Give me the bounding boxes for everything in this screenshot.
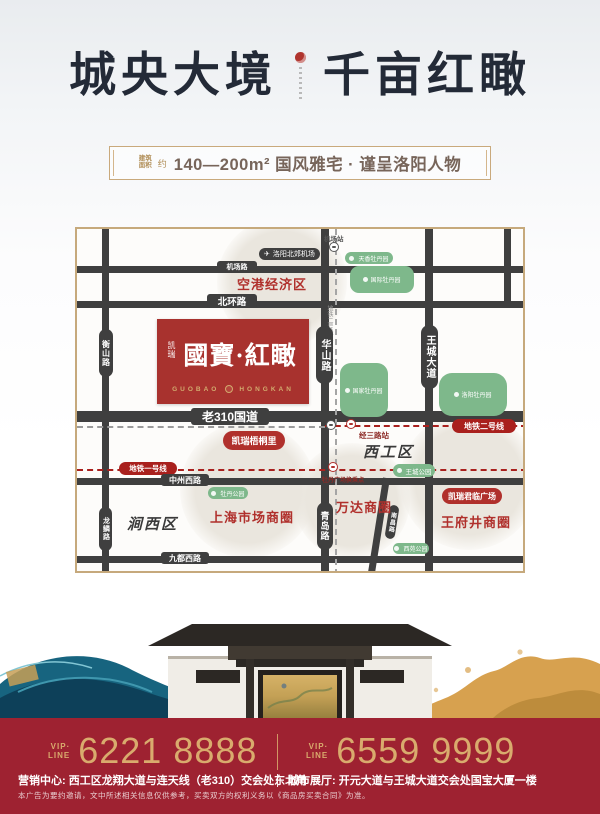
zone-konggang: 空港经济区 bbox=[237, 274, 307, 293]
vip-text: VIP· bbox=[51, 742, 71, 751]
vip-line-label-right: VIP· LINE bbox=[306, 742, 328, 760]
footer: VIP· LINE 6221 8888 VIP· LINE 6559 9999 … bbox=[0, 718, 600, 814]
road-label-zhongzhou-west: 中州西路 bbox=[161, 474, 209, 486]
airport-pill: ✈ 洛阳北郊机场 bbox=[259, 248, 320, 260]
line-text: LINE bbox=[48, 751, 70, 760]
road-label-longlin: 龙鳞路 bbox=[99, 507, 112, 551]
jingsan-station-icon-red bbox=[346, 419, 356, 429]
banner-text: 140—200m² 国风雅宅 · 谨呈洛阳人物 bbox=[174, 151, 461, 175]
park-international: 国际牡丹园 bbox=[350, 266, 414, 293]
phone-number-right: 6559 9999 bbox=[336, 730, 515, 772]
footer-divider-addresses bbox=[277, 774, 278, 787]
building-illustration bbox=[0, 612, 600, 718]
mudan-transfer-icon bbox=[328, 462, 338, 472]
area-label-line2: 面积 bbox=[139, 163, 152, 170]
airport-station-icon bbox=[329, 242, 339, 252]
poster: 城央大境 千亩红瞰 建筑 面积 约 140—200m² 国风雅宅 · 谨呈洛阳人… bbox=[0, 0, 600, 814]
landmark-wutongli: 凯瑞梧桐里 bbox=[223, 431, 285, 450]
jingsan-station-icon-gray bbox=[326, 420, 336, 430]
metro-line2-under-construction bbox=[335, 229, 337, 573]
banner-plaque: 建筑 面积 约 140—200m² 国风雅宅 · 谨呈洛阳人物 bbox=[109, 146, 491, 180]
project-brand: 凯瑞 bbox=[166, 341, 177, 359]
park-international-label: 国际牡丹园 bbox=[363, 275, 400, 284]
park-luoyang-label: 洛阳牡丹园 bbox=[454, 390, 491, 399]
park-tianxiang: 天香牡丹园 bbox=[345, 252, 393, 264]
zone-wangfujing: 王府井商圈 bbox=[441, 512, 511, 531]
banner-tick-right bbox=[486, 150, 487, 176]
road-zhongzhou-west bbox=[77, 478, 523, 485]
park-xiyuan: 西苑公园 bbox=[393, 543, 429, 554]
road-label-hengshan: 衡山路 bbox=[99, 329, 113, 377]
vip-line-label-left: VIP· LINE bbox=[48, 742, 70, 760]
road-jichang bbox=[77, 266, 523, 273]
landmark-junlin-plaza: 凯瑞君临广场 bbox=[442, 488, 502, 504]
airport-name: 洛阳北郊机场 bbox=[273, 249, 315, 259]
road-label-g310: 老310国道 bbox=[191, 408, 269, 425]
road-wangcheng-avenue bbox=[425, 229, 433, 571]
park-mudan: 牡丹公园 bbox=[208, 487, 248, 499]
road-label-wangcheng-avenue: 王城大道 bbox=[421, 325, 438, 389]
line-text-right: LINE bbox=[306, 751, 328, 760]
zone-shanghai-market: 上海市场商圈 bbox=[210, 507, 294, 526]
approx-label: 约 bbox=[158, 157, 167, 170]
metro-line2-west-segment bbox=[77, 426, 325, 428]
phone-number-left: 6221 8888 bbox=[78, 730, 257, 772]
address-marketing-center: 营销中心: 西工区龙翔大道与连天线（老310）交会处东北角 bbox=[18, 772, 307, 788]
road-label-beihuan: 北环路 bbox=[207, 294, 257, 308]
seal-icon bbox=[295, 52, 306, 63]
project-latin-row: GUOBAO HONGKAN bbox=[157, 385, 309, 393]
road-label-jiudu-west: 九都西路 bbox=[161, 552, 209, 564]
metro-line2-label: 地铁二号线 bbox=[452, 419, 516, 433]
banner-tick-left bbox=[113, 150, 114, 176]
airplane-icon: ✈ bbox=[264, 251, 270, 258]
title-left: 城央大境 bbox=[69, 53, 277, 100]
phone-block-right: VIP· LINE 6559 9999 bbox=[306, 730, 515, 772]
park-luoyang: 洛阳牡丹园 bbox=[439, 373, 507, 416]
seal-text-column bbox=[299, 67, 302, 101]
area-label: 建筑 面积 bbox=[139, 156, 152, 170]
district-jianxi: 涧西区 bbox=[127, 513, 178, 534]
disclaimer-text: 本广告为要约邀请，文中所述相关信息仅供参考，买卖双方的权利义务以《商品房买卖合同… bbox=[18, 790, 370, 801]
location-map: 地铁二号线（在建中） 地铁二号线 地铁一号线 机场路 北环路 老310国道 中州… bbox=[75, 227, 525, 573]
district-xigong: 西工区 bbox=[363, 441, 414, 462]
phone-block-left: VIP· LINE 6221 8888 bbox=[48, 730, 257, 772]
mudan-transfer-label: 牡丹广场换乘点 bbox=[322, 475, 364, 484]
road-label-qingdao: 青岛路 bbox=[317, 502, 333, 550]
project-mini-seal-icon bbox=[225, 385, 233, 393]
road-label-huashan: 华山路 bbox=[316, 326, 333, 384]
park-national: 国家牡丹园 bbox=[340, 363, 388, 417]
scene-svg bbox=[0, 612, 600, 718]
vip-text-right: VIP· bbox=[309, 742, 329, 751]
project-latin-right: HONGKAN bbox=[239, 386, 294, 393]
address-city-hall: 城市展厅: 开元大道与王城大道交会处国宝大厦一楼 bbox=[288, 772, 537, 788]
project-name: 國寶·紅瞰 bbox=[177, 336, 303, 372]
road-label-jichang: 机场路 bbox=[217, 261, 257, 272]
zone-wanda: 万达商圈 bbox=[336, 497, 392, 516]
road-jiudu-west bbox=[77, 556, 523, 563]
park-national-label: 国家牡丹园 bbox=[345, 386, 382, 395]
road-beihuan bbox=[77, 301, 523, 308]
brand-seal bbox=[290, 52, 310, 101]
project-latin-left: GUOBAO bbox=[172, 386, 219, 393]
footer-divider-phones bbox=[277, 734, 278, 770]
jingsan-station-label: 经三路站 bbox=[359, 430, 389, 441]
park-wangcheng: 王城公园 bbox=[393, 464, 435, 477]
title-right: 千亩红瞰 bbox=[323, 53, 531, 100]
project-logo-block: 凯瑞 國寶·紅瞰 GUOBAO HONGKAN bbox=[157, 319, 309, 404]
main-title: 城央大境 千亩红瞰 bbox=[0, 52, 600, 101]
road-right-partial bbox=[504, 229, 511, 305]
